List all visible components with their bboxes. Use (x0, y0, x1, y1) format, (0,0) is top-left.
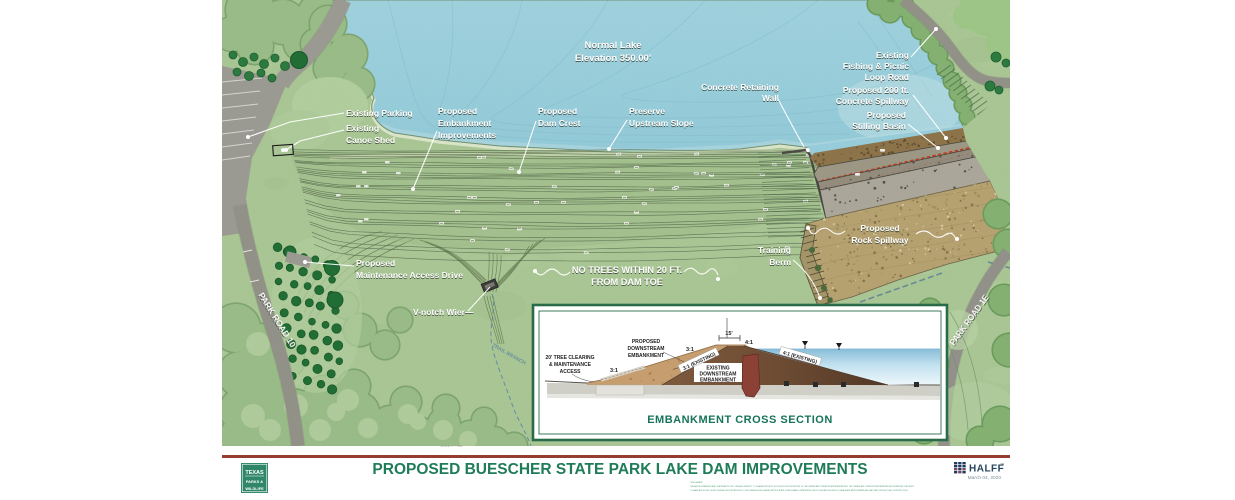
svg-text:3:1: 3:1 (686, 347, 694, 353)
svg-text:Training: Training (758, 245, 791, 255)
svg-text:Canoe Shed: Canoe Shed (346, 135, 395, 145)
svg-text:Rock Spillway: Rock Spillway (851, 235, 908, 245)
svg-text:Loop Road: Loop Road (865, 72, 909, 82)
svg-text:TEXAS: TEXAS (245, 470, 264, 476)
svg-text:Dam Crest: Dam Crest (538, 118, 581, 128)
svg-text:Proposed: Proposed (867, 110, 906, 120)
svg-text:NO TREES WITHIN 20 FT.: NO TREES WITHIN 20 FT. (572, 265, 682, 275)
svg-text:Upstream Slope: Upstream Slope (629, 118, 694, 128)
svg-text:WILDLIFE: WILDLIFE (245, 486, 264, 491)
svg-text:Fishing & Picnic: Fishing & Picnic (843, 61, 909, 71)
svg-text:ACCESS: ACCESS (560, 369, 582, 375)
svg-text:Embankment: Embankment (438, 118, 492, 128)
svg-text:Improvements: Improvements (438, 130, 496, 140)
svg-text:Elevation 350.00': Elevation 350.00' (575, 53, 651, 64)
svg-text:Berm: Berm (769, 257, 791, 267)
svg-text:Existing: Existing (346, 123, 379, 133)
svg-text:Existing: Existing (876, 50, 909, 60)
svg-text:SCALE: 1" = 100': SCALE: 1" = 100' (440, 444, 464, 448)
svg-text:Proposed: Proposed (356, 258, 395, 268)
svg-text:HALFF: HALFF (969, 464, 1004, 475)
svg-text:3:1: 3:1 (610, 368, 618, 374)
svg-text:Concrete Retaining: Concrete Retaining (701, 82, 779, 92)
svg-text:& MAINTENANCE: & MAINTENANCE (549, 362, 592, 368)
svg-text:Proposed: Proposed (438, 106, 477, 116)
svg-text:Proposed: Proposed (860, 223, 899, 233)
svg-text:EMBANKMENT: EMBANKMENT (700, 378, 736, 384)
svg-text:THE ABOVE DRAWINGS AND STATEME: THE ABOVE DRAWINGS AND STATEMENTS ONLY U… (690, 485, 915, 488)
svg-text:March 04, 2020: March 04, 2020 (968, 475, 1002, 481)
svg-text:PROPOSED: PROPOSED (632, 339, 661, 345)
svg-text:PROPOSED BUESCHER STATE PARK L: PROPOSED BUESCHER STATE PARK LAKE DAM IM… (372, 461, 867, 478)
svg-text:PARKS &: PARKS & (246, 479, 263, 484)
svg-text:V-notch Wier—: V-notch Wier— (413, 307, 474, 317)
svg-text:4:1: 4:1 (745, 340, 753, 346)
svg-text:Stilling Basin: Stilling Basin (852, 121, 906, 131)
svg-text:EMBANKMENT CROSS SECTION: EMBANKMENT CROSS SECTION (647, 414, 833, 426)
svg-text:™: ™ (1000, 462, 1004, 467)
svg-text:Concrete Spillway: Concrete Spillway (836, 96, 909, 106)
svg-text:FROM DAM TOE: FROM DAM TOE (591, 277, 663, 287)
svg-text:Proposed 200 ft.: Proposed 200 ft. (843, 85, 909, 95)
svg-text:Normal Lake: Normal Lake (584, 40, 641, 51)
svg-text:Proposed: Proposed (538, 106, 577, 116)
svg-text:TO MAKE ADDITIONS, DELETIONS A: TO MAKE ADDITIONS, DELETIONS AND MODIFIC… (690, 489, 908, 492)
svg-text:20' TREE CLEARING: 20' TREE CLEARING (546, 355, 595, 361)
svg-text:Preserve: Preserve (629, 106, 665, 116)
svg-text:15': 15' (725, 331, 733, 337)
svg-text:Existing Parking: Existing Parking (346, 108, 413, 118)
svg-text:EMBANKMENT: EMBANKMENT (628, 353, 664, 359)
svg-text:DOWNSTREAM: DOWNSTREAM (628, 346, 665, 352)
svg-text:*DISCLAIMER*: *DISCLAIMER* (690, 481, 703, 484)
svg-text:Wall: Wall (762, 93, 779, 103)
svg-text:Maintenance Access Drive: Maintenance Access Drive (356, 270, 463, 280)
